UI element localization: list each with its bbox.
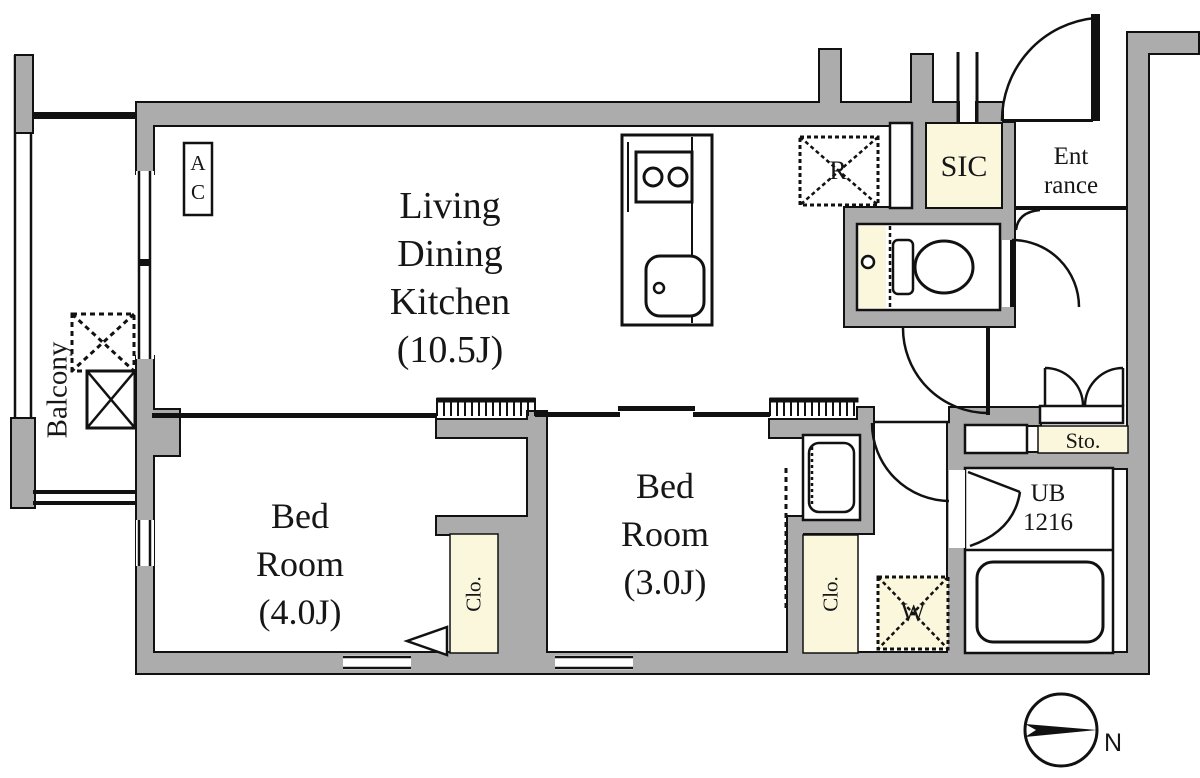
sink-icon: [646, 256, 704, 316]
ldk-label-line1: Living: [320, 182, 580, 230]
entrance-label: Ent rance: [1014, 142, 1128, 200]
bedroom1-side-window: [136, 520, 154, 566]
balcony-post-top: [15, 55, 33, 133]
stove-icon: [636, 152, 692, 202]
entrance-door: [1002, 14, 1100, 122]
floorplan-svg: [0, 0, 1200, 778]
bedroom2-bottom-window: [555, 655, 633, 670]
compass-n-label: N: [1098, 728, 1128, 759]
closet2-label: Clo.: [819, 576, 844, 612]
bedroom1-label-size: (4.0J): [195, 588, 405, 636]
hall-door: [903, 326, 990, 415]
entrance-step: [1014, 206, 1128, 230]
bedroom1-bottom-window: [343, 655, 411, 670]
ldk-label-line3: Kitchen: [320, 278, 580, 326]
ac-label: A C: [184, 149, 212, 207]
bedroom2-label-size: (3.0J): [560, 558, 770, 606]
pipe-space-icon: [87, 371, 135, 428]
ldk-label-line2: Dining: [320, 230, 580, 278]
toilet-door: [1002, 240, 1079, 307]
kitchen-counter: [622, 135, 712, 325]
balcony-label: Balcony: [42, 342, 75, 439]
ldk-label: Living Dining Kitchen (10.5J): [320, 182, 580, 374]
bedroom2-label: Bed Room (3.0J): [560, 462, 770, 606]
unit-bath-label: UB 1216: [1003, 479, 1093, 537]
ldk-balcony-window: [136, 171, 154, 359]
counter-box: [965, 425, 1027, 453]
compass-icon: [1025, 694, 1097, 766]
hall-door-arc: [903, 326, 988, 413]
washroom-door-arc: [872, 423, 950, 501]
toilet-room: [857, 224, 1000, 310]
balcony-post-bottom: [11, 418, 35, 508]
pillar: [890, 123, 912, 208]
closet1-label: Clo.: [462, 576, 487, 612]
sliding-partition: [152, 406, 770, 418]
balcony-bottom-rail: [33, 490, 137, 494]
closet-door-arrow-icon: [407, 627, 447, 655]
storage-label: Sto.: [1038, 427, 1128, 455]
refrigerator-label: R: [808, 155, 868, 188]
balcony: [11, 55, 137, 508]
bathtub-icon: [977, 562, 1103, 642]
ac-outdoor-unit-icon: [72, 314, 134, 371]
balcony-top-rail: [33, 112, 137, 119]
bedroom1-label: Bed Room (4.0J): [195, 492, 405, 636]
sic-label: SIC: [926, 148, 1002, 186]
floor-plan: Living Dining Kitchen (10.5J) Bed Room (…: [0, 0, 1200, 778]
toilet-icon: [893, 240, 973, 294]
balcony-bottom-rail-2: [33, 501, 137, 505]
entrance-door-arc: [1002, 18, 1095, 121]
washer-label: W: [883, 597, 943, 630]
vanity-cabinet-icon: [803, 435, 860, 520]
ldk-label-size: (10.5J): [320, 326, 580, 374]
